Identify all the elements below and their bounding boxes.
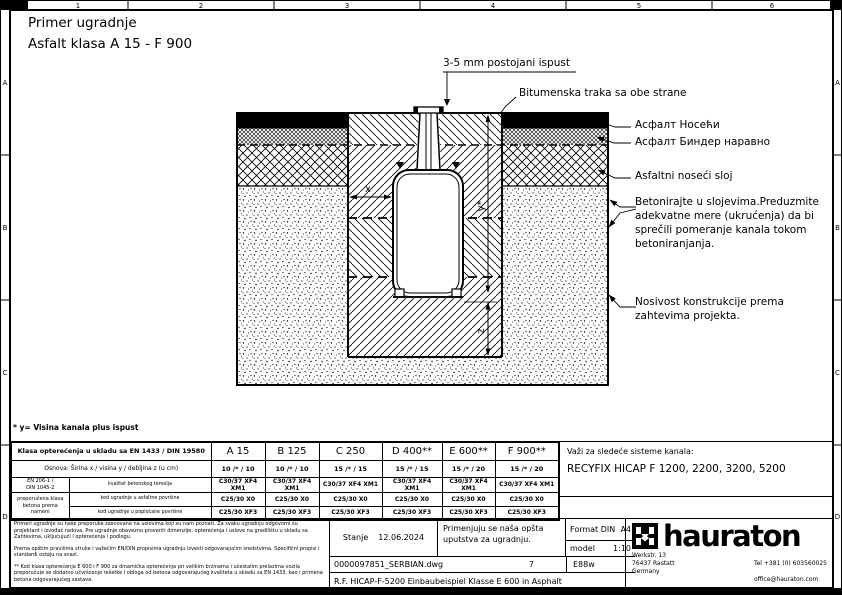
- svg-text:C: C: [835, 369, 840, 377]
- brand-wordmark: hauraton: [663, 523, 800, 549]
- col-header: E 600**: [442, 442, 495, 460]
- brand-phone: Tel +381 (0) 603560025: [754, 560, 827, 568]
- disclaimer-p3: ** Kod klasa opterećenja E 600 i F 900 z…: [14, 564, 325, 584]
- col-header: D 400**: [382, 442, 442, 460]
- svg-text:B: B: [3, 224, 8, 232]
- scale-label: model: [570, 544, 595, 553]
- annotation-bitumen: Bitumenska traka sa obe strane: [519, 87, 687, 101]
- osnova-value: 15 /* / 20: [495, 460, 559, 477]
- table-row-concrete-2: preporučena klasa betona prema nameni ko…: [11, 492, 559, 506]
- logo-cell: hauraton Werkstr. 13 76437 Rastatt Germa…: [625, 519, 833, 589]
- concrete-value: C30/37 XF4 XM1: [382, 477, 442, 492]
- osnova-value: 10 /* / 10: [211, 460, 265, 477]
- cross-section: x y* z: [237, 72, 636, 385]
- svg-text:A: A: [835, 79, 840, 87]
- annotation-asfaltni-sloj: Asfaltni noseći sloj: [635, 170, 733, 184]
- title-block: Primeri ugradnje su naše preporuke zasno…: [10, 518, 833, 588]
- svg-text:5: 5: [637, 2, 641, 10]
- asphalt-wearing-right: [502, 113, 608, 128]
- file-cell: 0000097851_SERBIAN.dwg 7: [330, 557, 566, 573]
- concrete-value: C25/30 X0: [319, 492, 382, 506]
- annotation-asfalt-noseci: Асфалт Носећи: [635, 119, 720, 133]
- note-cell: Primenjuju se naša opšta uputstva za ugr…: [438, 519, 566, 557]
- svg-text:D: D: [2, 513, 7, 521]
- status-label: Stanje: [343, 533, 368, 542]
- concrete-value: C25/30 X0: [265, 492, 319, 506]
- title-line-2: Asfalt klasa A 15 - F 900: [28, 34, 192, 55]
- sheet-title: Primer ugradnje Asfalt klasa A 15 - F 90…: [28, 13, 192, 55]
- valid-systems-panel: Važi za sledeće sisteme kanala: RECYFIX …: [558, 441, 833, 497]
- col-header: B 125: [265, 442, 319, 460]
- osnova-value: 15 /* / 20: [442, 460, 495, 477]
- valid-label: Važi za sledeće sisteme kanala:: [567, 447, 825, 456]
- osnova-value: 10 /* / 10: [265, 460, 319, 477]
- svg-text:4: 4: [491, 2, 496, 10]
- load-class-table: Klasa opterećenja u skladu sa EN 1433 / …: [10, 441, 560, 521]
- concrete-value: C25/30 X0: [382, 492, 442, 506]
- disclaimer: Primeri ugradnje su naše preporuke zasno…: [10, 519, 330, 589]
- svg-text:D: D: [835, 513, 840, 521]
- disclaimer-p1: Primeri ugradnje su naše preporuke zasno…: [14, 521, 325, 541]
- brand-email: office@hauraton.com: [754, 576, 827, 584]
- col-header: F 900**: [495, 442, 559, 460]
- asphalt-binder-right: [502, 128, 608, 145]
- table-row-class: Klasa opterećenja u skladu sa EN 1433 / …: [11, 442, 559, 460]
- svg-text:2: 2: [199, 2, 203, 10]
- annotation-asfalt-binder: Асфалт Биндер наравно: [635, 136, 770, 150]
- asphalt-binder-left: [237, 128, 348, 145]
- svg-text:6: 6: [770, 2, 775, 10]
- class-row-label: Klasa opterećenja u skladu sa EN 1433 / …: [11, 442, 211, 460]
- sheet-number: 7: [529, 560, 534, 569]
- asphalt-base-right: [502, 145, 608, 186]
- file-name: 0000097851_SERBIAN.dwg: [334, 560, 443, 569]
- table-row-osnova: Osnova: Širina x / visina y / debljina z…: [11, 460, 559, 477]
- norm-note-cell: preporučena klasa betona prema nameni: [11, 492, 69, 520]
- concrete-value: C30/37 XF4 XM1: [265, 477, 319, 492]
- col-header: A 15: [211, 442, 265, 460]
- svg-text:B: B: [835, 224, 840, 232]
- annotation-betonirajte: Betonirajte u slojevima.Preduzmite adekv…: [635, 196, 819, 251]
- osnova-label: Osnova: Širina x / visina y / debljina z…: [11, 460, 211, 477]
- row-label: kod ugradnje u asfaltne površine: [69, 492, 211, 506]
- svg-text:1: 1: [76, 2, 80, 10]
- asphalt-wearing-left: [237, 113, 348, 128]
- dim-x-label: x: [365, 184, 371, 195]
- brand-address: Werkstr. 13 76437 Rastatt Germany: [632, 552, 675, 592]
- svg-text:3: 3: [345, 2, 349, 10]
- osnova-value: 15 /* / 15: [382, 460, 442, 477]
- concrete-value: C25/30 X0: [211, 492, 265, 506]
- concrete-value: C30/37 XF4 XM1: [495, 477, 559, 492]
- hauraton-logo-icon: [632, 523, 658, 549]
- disclaimer-p2: Prema opštim pravilima struke i važećim …: [14, 546, 325, 559]
- table-row-concrete-1: EN 206-1 / DIN 1045-2 kvalitet betonskog…: [11, 477, 559, 492]
- footnote-y: * y= Visina kanala plus ispust: [13, 423, 138, 432]
- drawing-title: R.F. HICAP-F-5200 Einbaubeispiel Klasse …: [330, 573, 635, 589]
- dim-z-label: z: [476, 328, 487, 333]
- concrete-value: C25/30 X0: [495, 492, 559, 506]
- annotation-ispust: 3-5 mm postojani ispust: [443, 57, 570, 71]
- concrete-value: C30/37 XF4 XM1: [442, 477, 495, 492]
- dim-y-label: y*: [476, 201, 487, 212]
- format-label: Format DIN: [570, 525, 615, 534]
- concrete-value: C30/37 XF4 XM1: [319, 477, 382, 492]
- col-header: C 250: [319, 442, 382, 460]
- status-cell: Stanje 12.06.2024: [330, 519, 438, 557]
- svg-text:A: A: [3, 79, 8, 87]
- osnova-value: 15 /* / 15: [319, 460, 382, 477]
- annotation-nosivost: Nosivost konstrukcije prema zahtevima pr…: [635, 296, 784, 324]
- concrete-value: C30/37 XF4 XM1: [211, 477, 265, 492]
- concrete-value: C25/30 X0: [442, 492, 495, 506]
- status-date: 12.06.2024: [378, 533, 424, 542]
- norm-cell: EN 206-1 / DIN 1045-2: [11, 477, 69, 492]
- title-line-1: Primer ugradnje: [28, 13, 192, 34]
- svg-text:C: C: [3, 369, 8, 377]
- valid-systems: RECYFIX HICAP F 1200, 2200, 3200, 5200: [567, 463, 825, 475]
- asphalt-base-left: [237, 145, 348, 186]
- row-label: kvalitet betonskog temelja: [69, 477, 211, 492]
